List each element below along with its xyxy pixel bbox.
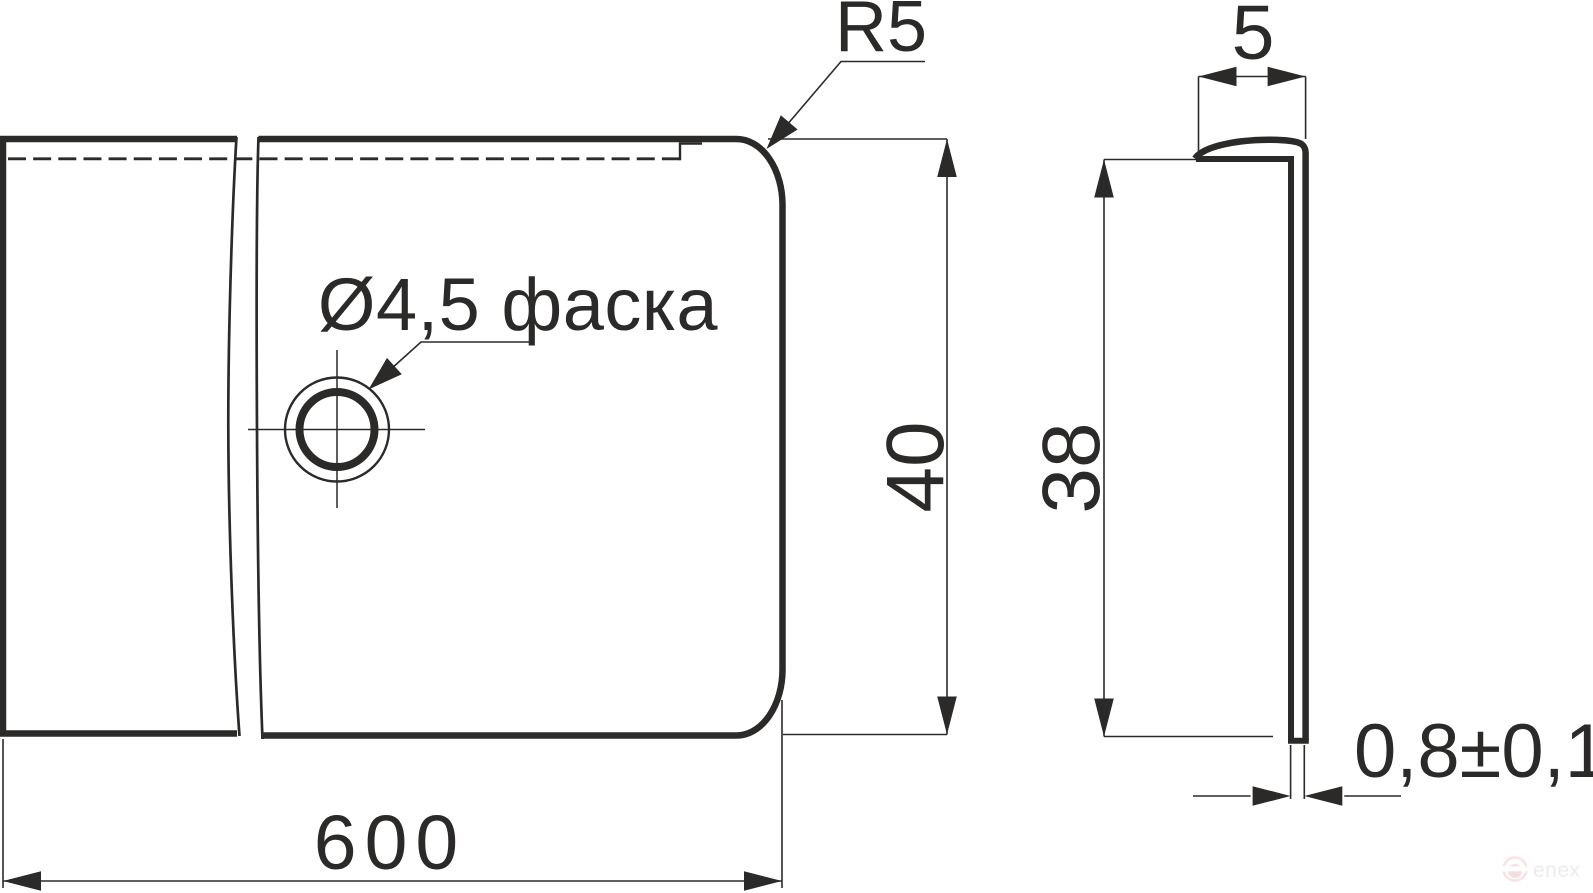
svg-text:38: 38 [1026, 422, 1117, 513]
svg-text:40: 40 [870, 421, 961, 512]
svg-text:Ø4,5 фаска: Ø4,5 фаска [318, 263, 719, 346]
svg-text:5: 5 [1232, 0, 1275, 76]
svg-text:enex: enex [1533, 859, 1581, 882]
svg-text:600: 600 [314, 800, 466, 886]
svg-text:0,8±0,1: 0,8±0,1 [1354, 709, 1593, 794]
svg-text:R5: R5 [835, 0, 927, 67]
